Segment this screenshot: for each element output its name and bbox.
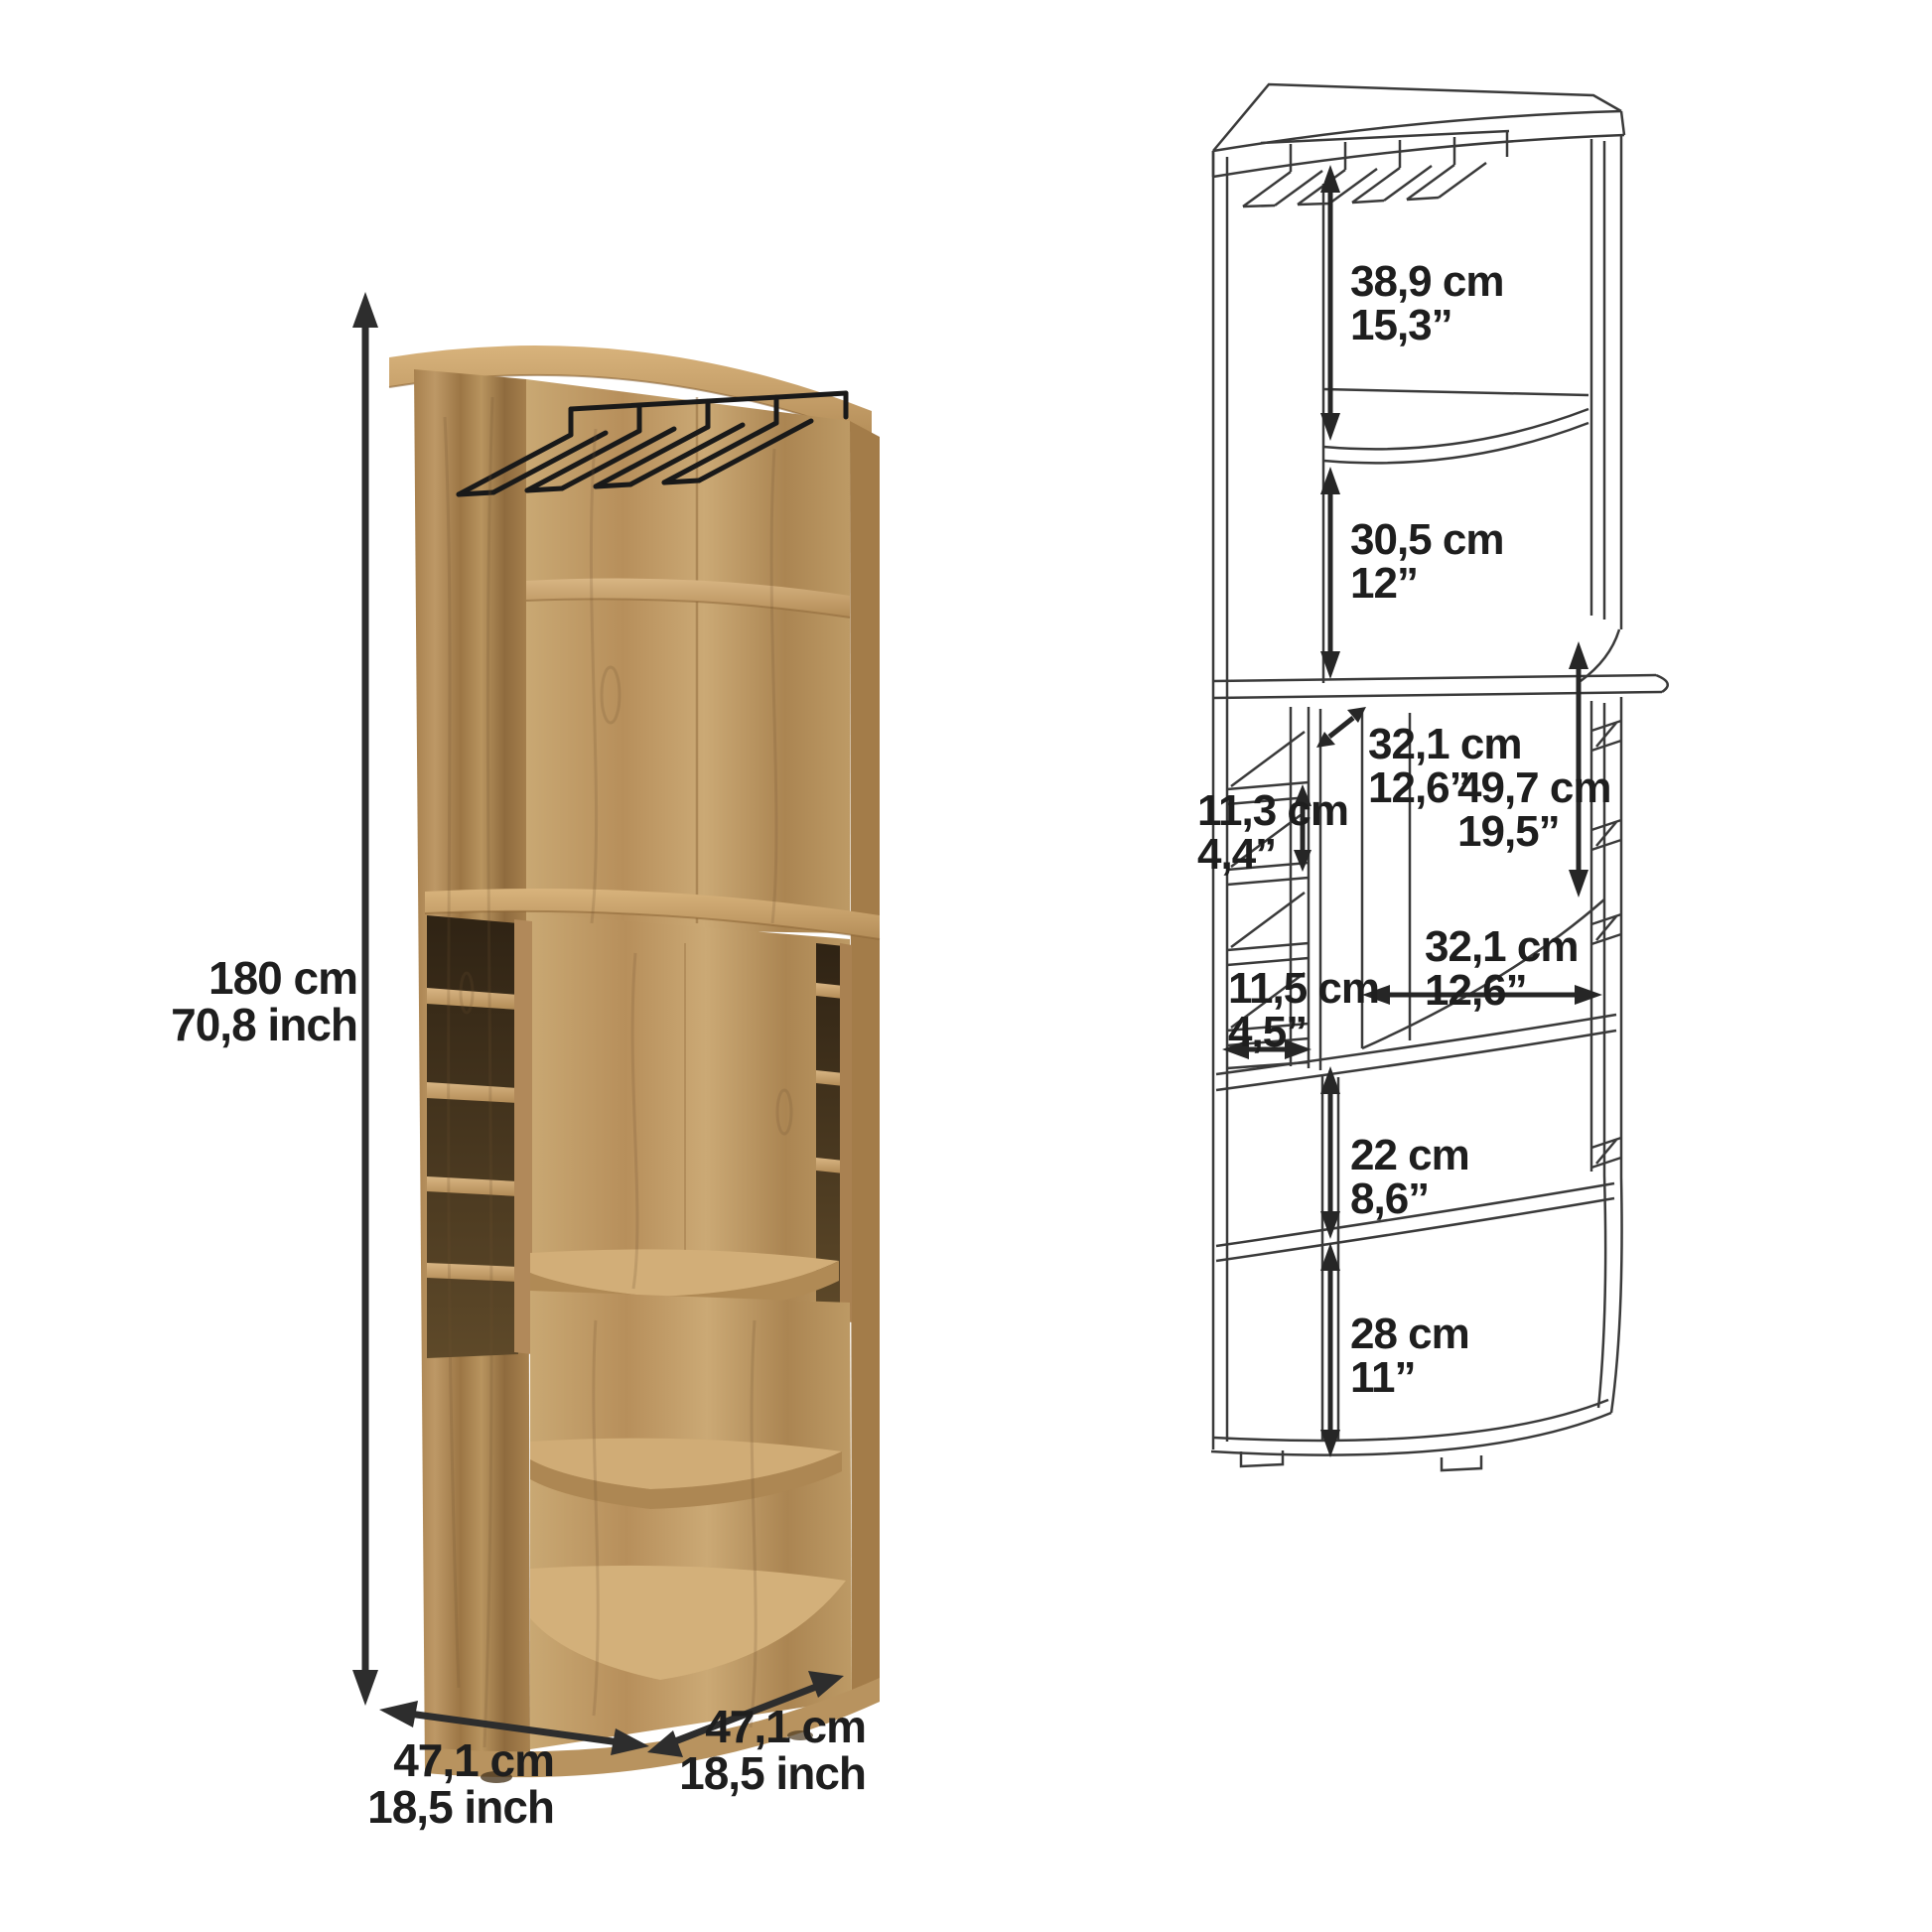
- middle-depth-arrow: [1316, 707, 1366, 748]
- inch-value: 4,4”: [1197, 833, 1348, 877]
- cm-value: 47,1 cm: [667, 1704, 866, 1750]
- inch-value: 4,5”: [1228, 1011, 1379, 1054]
- cubby-width-label: 11,5 cm 4,5”: [1228, 967, 1379, 1054]
- inch-value: 15,3”: [1350, 304, 1503, 347]
- inch-value: 12,6”: [1425, 969, 1578, 1013]
- cm-value: 22 cm: [1350, 1134, 1469, 1177]
- inch-value: 11”: [1350, 1356, 1469, 1400]
- inch-value: 18,5 inch: [667, 1750, 866, 1797]
- inch-value: 12”: [1350, 562, 1503, 606]
- photo-cabinet: [389, 345, 880, 1783]
- inch-value: 19,5”: [1457, 810, 1610, 854]
- inch-value: 8,6”: [1350, 1177, 1469, 1221]
- lower-shelf-label: 22 cm 8,6”: [1350, 1134, 1469, 1221]
- inch-value: 70,8 inch: [159, 1002, 357, 1048]
- middle-width-label: 32,1 cm 12,6”: [1425, 925, 1578, 1013]
- product-dimension-figure: 180 cm 70,8 inch 47,1 cm 18,5 inch 47,1 …: [0, 0, 1932, 1932]
- wireframe-stemware-rack: [1243, 131, 1509, 207]
- depth-left-dimension-label: 47,1 cm 18,5 inch: [355, 1737, 554, 1831]
- height-dimension-label: 180 cm 70,8 inch: [159, 955, 357, 1048]
- cm-value: 28 cm: [1350, 1312, 1469, 1356]
- cm-value: 32,1 cm: [1368, 723, 1521, 766]
- shelf-section-label: 30,5 cm 12”: [1350, 518, 1503, 606]
- cubby-height-label: 11,3 cm 4,4”: [1197, 789, 1348, 877]
- cm-value: 47,1 cm: [355, 1737, 554, 1784]
- cm-value: 32,1 cm: [1425, 925, 1578, 969]
- left-wine-cubbies: [427, 915, 532, 1358]
- cm-value: 49,7 cm: [1457, 766, 1610, 810]
- cm-value: 11,3 cm: [1197, 789, 1348, 833]
- cm-value: 38,9 cm: [1350, 260, 1503, 304]
- middle-height-label: 49,7 cm 19,5”: [1457, 766, 1610, 854]
- depth-right-dimension-label: 47,1 cm 18,5 inch: [667, 1704, 866, 1797]
- cm-value: 180 cm: [159, 955, 357, 1002]
- cm-value: 30,5 cm: [1350, 518, 1503, 562]
- bottom-shelf-label: 28 cm 11”: [1350, 1312, 1469, 1400]
- rack-section-label: 38,9 cm 15,3”: [1350, 260, 1503, 347]
- cm-value: 11,5 cm: [1228, 967, 1379, 1011]
- inch-value: 18,5 inch: [355, 1784, 554, 1831]
